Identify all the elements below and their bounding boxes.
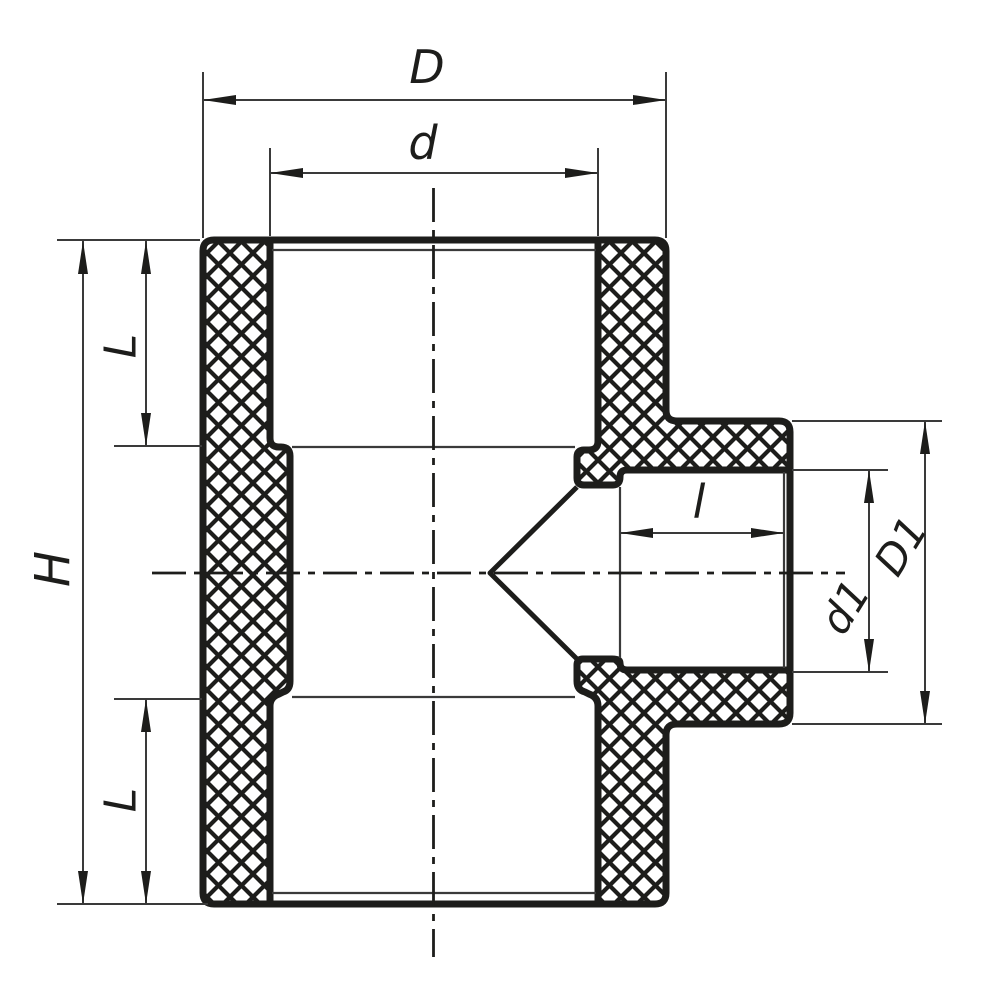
technical-drawing-page: D d H (0, 0, 1000, 1000)
dim-label-l: l (693, 475, 706, 529)
dim-label-d: d (408, 116, 438, 170)
drawing-background (0, 0, 1000, 1000)
dim-label-L-bottom: L (96, 788, 147, 813)
dim-label-H: H (25, 551, 81, 587)
tee-fitting-section-drawing: D d H (0, 0, 1000, 1000)
dim-label-L-top: L (96, 334, 147, 359)
dim-label-D: D (409, 40, 444, 94)
